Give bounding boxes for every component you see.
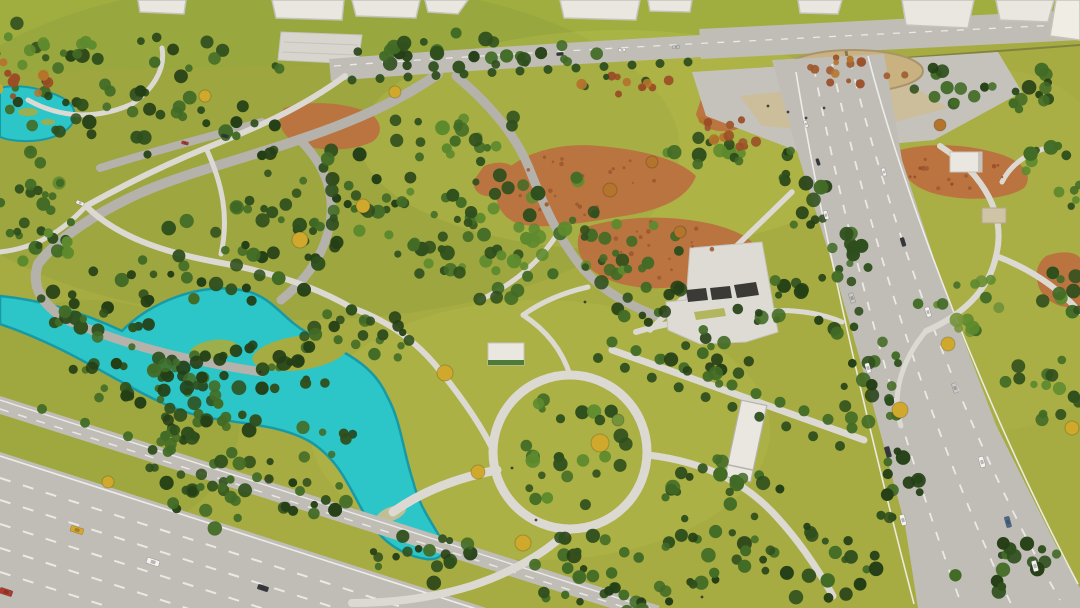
tree bbox=[167, 271, 174, 278]
tree bbox=[870, 551, 880, 561]
tree bbox=[311, 501, 318, 508]
tree bbox=[273, 350, 287, 364]
tree bbox=[260, 205, 268, 213]
tree bbox=[138, 255, 147, 264]
tree bbox=[92, 53, 104, 65]
tree bbox=[187, 486, 197, 496]
tree bbox=[420, 38, 428, 46]
tree bbox=[639, 235, 643, 239]
tree bbox=[294, 356, 304, 366]
tree bbox=[520, 262, 528, 270]
tree bbox=[554, 452, 565, 463]
row-tree bbox=[488, 68, 497, 77]
row-tree bbox=[432, 71, 441, 80]
tree bbox=[44, 228, 53, 237]
tree bbox=[213, 353, 226, 366]
tree bbox=[264, 170, 272, 178]
tree bbox=[814, 316, 823, 325]
accent-tree bbox=[646, 156, 658, 168]
tree bbox=[500, 49, 513, 62]
tree bbox=[430, 46, 444, 60]
tree bbox=[717, 336, 730, 349]
tree bbox=[164, 403, 175, 414]
tree bbox=[733, 304, 744, 315]
tree bbox=[92, 331, 104, 343]
tree bbox=[928, 63, 939, 74]
tree bbox=[822, 538, 829, 545]
tree bbox=[845, 411, 858, 424]
pond-islet bbox=[18, 108, 38, 116]
tree bbox=[76, 99, 88, 111]
tree bbox=[13, 228, 21, 236]
tree bbox=[697, 347, 709, 359]
tree bbox=[988, 82, 997, 91]
tree bbox=[839, 587, 852, 600]
tree bbox=[560, 157, 564, 161]
tree bbox=[407, 239, 419, 251]
tree bbox=[916, 488, 924, 496]
tree bbox=[884, 512, 895, 523]
tree bbox=[245, 196, 255, 206]
tree bbox=[729, 529, 736, 536]
tree bbox=[137, 130, 152, 145]
tree bbox=[527, 168, 531, 172]
tree bbox=[664, 352, 678, 366]
row-tree bbox=[808, 431, 818, 441]
tree bbox=[811, 215, 820, 224]
tree bbox=[964, 174, 968, 178]
tree bbox=[274, 64, 284, 74]
tree bbox=[428, 61, 439, 72]
tree bbox=[255, 382, 268, 395]
tree bbox=[970, 279, 980, 289]
tree bbox=[623, 166, 626, 169]
tree bbox=[143, 150, 151, 158]
row-tree bbox=[775, 397, 786, 408]
tree bbox=[726, 488, 734, 496]
tree bbox=[639, 312, 647, 320]
tree bbox=[414, 268, 424, 278]
tree bbox=[183, 91, 197, 105]
tree bbox=[595, 415, 606, 426]
tree bbox=[185, 64, 193, 72]
tree bbox=[210, 389, 222, 401]
tree bbox=[415, 152, 424, 161]
tree bbox=[477, 228, 491, 242]
row-tree bbox=[252, 472, 262, 482]
tree bbox=[297, 283, 311, 297]
tree bbox=[639, 84, 646, 91]
tree bbox=[715, 380, 723, 388]
tree bbox=[668, 258, 671, 261]
accent-tree bbox=[674, 226, 686, 238]
tree bbox=[726, 121, 734, 129]
tree bbox=[594, 275, 608, 289]
tree bbox=[559, 162, 564, 167]
tree bbox=[1054, 187, 1065, 198]
tree bbox=[884, 394, 894, 404]
tree bbox=[709, 366, 723, 380]
tree bbox=[10, 17, 23, 30]
tree bbox=[42, 191, 49, 198]
accent-tree bbox=[603, 183, 617, 197]
tree bbox=[740, 545, 751, 556]
tree bbox=[209, 277, 223, 291]
tree bbox=[786, 147, 795, 156]
tree bbox=[1007, 549, 1022, 564]
tree bbox=[35, 157, 47, 169]
accent-tree bbox=[102, 476, 114, 488]
tree bbox=[243, 205, 252, 214]
tree bbox=[1039, 82, 1051, 94]
tree bbox=[5, 105, 15, 115]
pedestrian bbox=[701, 596, 704, 599]
tree bbox=[27, 147, 34, 154]
tree bbox=[444, 557, 456, 569]
tree bbox=[150, 271, 158, 279]
tree bbox=[507, 254, 521, 268]
tree bbox=[256, 362, 270, 376]
tree bbox=[99, 309, 108, 318]
tree bbox=[46, 285, 60, 299]
tree bbox=[238, 411, 247, 420]
tree bbox=[472, 178, 479, 185]
tree bbox=[438, 121, 448, 131]
tree bbox=[278, 216, 285, 223]
tree bbox=[665, 480, 680, 495]
tree bbox=[39, 40, 50, 51]
car bbox=[672, 45, 679, 49]
tree bbox=[177, 470, 186, 479]
tree bbox=[552, 161, 555, 164]
tree bbox=[789, 590, 803, 604]
building bbox=[902, 0, 974, 28]
tree bbox=[633, 552, 644, 563]
tree bbox=[1039, 410, 1048, 419]
tree bbox=[826, 79, 834, 87]
tree bbox=[884, 458, 893, 467]
tree bbox=[545, 202, 549, 206]
tree bbox=[59, 305, 72, 318]
tree bbox=[185, 431, 199, 445]
tree bbox=[598, 232, 611, 245]
tree bbox=[70, 113, 81, 124]
row-tree bbox=[727, 380, 738, 391]
tree bbox=[160, 476, 174, 490]
tree bbox=[270, 384, 280, 394]
tree bbox=[174, 408, 188, 422]
tree bbox=[330, 214, 338, 222]
accent-tree bbox=[471, 465, 485, 479]
tree bbox=[538, 587, 550, 599]
tree bbox=[986, 275, 996, 285]
tree bbox=[440, 246, 455, 261]
tree bbox=[315, 222, 325, 232]
tree bbox=[692, 159, 703, 170]
tree bbox=[641, 282, 652, 293]
tree bbox=[538, 472, 546, 480]
tree bbox=[68, 290, 77, 299]
tree bbox=[1044, 140, 1059, 155]
tree bbox=[881, 488, 894, 501]
row-tree bbox=[631, 345, 642, 356]
tree bbox=[751, 535, 759, 543]
tree bbox=[529, 493, 541, 505]
tree bbox=[647, 244, 650, 247]
tree bbox=[51, 126, 60, 135]
tree bbox=[759, 556, 767, 564]
accent-tree bbox=[356, 199, 370, 213]
tree bbox=[581, 233, 589, 241]
tree bbox=[34, 89, 42, 97]
tree bbox=[465, 206, 477, 218]
car-cabin bbox=[559, 53, 562, 55]
tree bbox=[222, 422, 231, 431]
tree bbox=[402, 61, 411, 70]
tree bbox=[214, 455, 228, 469]
tree bbox=[414, 118, 422, 126]
tree bbox=[344, 200, 352, 208]
tree bbox=[839, 400, 851, 412]
tree bbox=[468, 51, 479, 62]
tree bbox=[664, 76, 674, 86]
tree bbox=[511, 284, 525, 298]
tree bbox=[623, 78, 631, 86]
tree bbox=[446, 189, 459, 202]
tree bbox=[713, 144, 727, 158]
pavilion-shade-face bbox=[978, 152, 982, 172]
tree bbox=[738, 116, 745, 123]
tree bbox=[1015, 105, 1023, 113]
tree bbox=[233, 457, 247, 471]
tree bbox=[796, 206, 809, 219]
accent-tree bbox=[199, 90, 211, 102]
row-tree bbox=[656, 59, 665, 68]
tree bbox=[980, 292, 992, 304]
tree bbox=[173, 100, 186, 113]
tree bbox=[76, 38, 87, 49]
tree bbox=[152, 33, 162, 43]
tree bbox=[4, 32, 13, 41]
tree bbox=[319, 429, 326, 436]
tree bbox=[592, 469, 600, 477]
tree bbox=[954, 82, 967, 95]
tree bbox=[151, 464, 159, 472]
tree bbox=[379, 51, 389, 61]
tree bbox=[384, 230, 393, 239]
tree bbox=[127, 106, 138, 117]
tree bbox=[72, 49, 82, 59]
tree bbox=[230, 259, 243, 272]
pedestrian bbox=[511, 467, 514, 470]
tree bbox=[226, 447, 237, 458]
tree bbox=[554, 195, 557, 198]
tree bbox=[392, 320, 404, 332]
tree bbox=[404, 335, 415, 346]
tree bbox=[128, 343, 135, 350]
park-aerial-render bbox=[0, 0, 1080, 608]
tree bbox=[491, 60, 500, 69]
tree bbox=[580, 499, 591, 510]
tree bbox=[101, 384, 109, 392]
tree bbox=[35, 242, 42, 249]
tree bbox=[623, 293, 633, 303]
pedestrian bbox=[259, 371, 262, 374]
tree bbox=[202, 119, 210, 127]
tree bbox=[911, 473, 926, 488]
tree bbox=[397, 342, 404, 349]
tree bbox=[167, 44, 179, 56]
tree bbox=[299, 451, 310, 462]
tree bbox=[311, 256, 325, 270]
tree bbox=[496, 250, 506, 260]
tree bbox=[770, 275, 781, 286]
tree bbox=[1000, 376, 1012, 388]
tree bbox=[300, 378, 311, 389]
tree bbox=[603, 74, 609, 80]
tree bbox=[303, 341, 315, 353]
tree bbox=[799, 176, 814, 191]
tree bbox=[230, 116, 242, 128]
park-render-canvas bbox=[0, 0, 1080, 608]
tree bbox=[6, 229, 15, 238]
tree bbox=[299, 331, 309, 341]
tree bbox=[221, 246, 230, 255]
tree bbox=[992, 164, 997, 169]
tree bbox=[854, 307, 863, 316]
tree bbox=[19, 218, 30, 229]
row-tree bbox=[123, 431, 133, 441]
tree bbox=[674, 246, 684, 256]
tree bbox=[217, 483, 226, 492]
tree bbox=[250, 119, 258, 127]
tree bbox=[522, 271, 533, 282]
tree bbox=[156, 110, 166, 120]
row-tree bbox=[628, 61, 637, 70]
tree bbox=[60, 49, 67, 56]
tree bbox=[452, 61, 465, 74]
tree bbox=[242, 284, 251, 293]
tree bbox=[766, 545, 776, 555]
tree bbox=[288, 506, 298, 516]
accent-tree bbox=[892, 402, 908, 418]
tree bbox=[1038, 545, 1046, 553]
tree bbox=[1041, 380, 1051, 390]
tree bbox=[583, 214, 586, 217]
tree bbox=[370, 548, 377, 555]
accent-tree bbox=[612, 414, 624, 426]
tree bbox=[865, 388, 879, 402]
tree bbox=[571, 172, 583, 184]
tree bbox=[519, 194, 522, 197]
tree bbox=[463, 231, 474, 242]
tree bbox=[980, 83, 989, 92]
tree bbox=[850, 323, 859, 332]
tree bbox=[296, 421, 309, 434]
tree bbox=[582, 263, 589, 270]
tree bbox=[795, 283, 809, 297]
tree bbox=[67, 218, 75, 226]
tree bbox=[463, 548, 471, 556]
tree bbox=[713, 467, 728, 482]
tree bbox=[1053, 382, 1066, 395]
tree bbox=[493, 168, 507, 182]
pedestrian bbox=[535, 519, 538, 522]
tree bbox=[608, 170, 612, 174]
tree bbox=[996, 563, 1010, 577]
pavilion bbox=[982, 208, 1006, 223]
tree bbox=[220, 412, 231, 423]
tree bbox=[207, 481, 218, 492]
tree bbox=[624, 265, 632, 273]
tree bbox=[611, 219, 622, 230]
tree bbox=[924, 158, 927, 161]
tree bbox=[536, 248, 549, 261]
tree bbox=[390, 134, 403, 147]
tree bbox=[862, 415, 876, 429]
tree bbox=[1012, 88, 1020, 96]
tree bbox=[506, 120, 518, 132]
shelter-roof bbox=[686, 288, 708, 302]
tree bbox=[993, 302, 1004, 313]
tree bbox=[901, 71, 908, 78]
tree bbox=[267, 458, 274, 465]
tree bbox=[201, 36, 214, 49]
tree bbox=[1046, 369, 1059, 382]
tree bbox=[8, 76, 19, 87]
tree bbox=[329, 321, 340, 332]
tree bbox=[701, 548, 716, 563]
tree bbox=[733, 367, 744, 378]
tree bbox=[657, 276, 661, 280]
tree bbox=[188, 293, 199, 304]
pavilion bbox=[950, 152, 982, 172]
row-tree bbox=[823, 414, 834, 425]
tree bbox=[24, 44, 36, 56]
tree bbox=[328, 451, 335, 458]
tree bbox=[929, 91, 941, 103]
tree bbox=[857, 57, 867, 67]
tree bbox=[1072, 196, 1080, 204]
tree bbox=[149, 57, 160, 68]
tree bbox=[941, 81, 954, 94]
tree bbox=[488, 203, 500, 215]
tree bbox=[683, 366, 693, 376]
tree bbox=[561, 471, 573, 483]
tree bbox=[346, 304, 357, 315]
tree bbox=[667, 145, 681, 159]
tree bbox=[246, 248, 260, 262]
tree bbox=[936, 186, 940, 190]
tree bbox=[62, 99, 69, 106]
tree bbox=[918, 166, 922, 170]
tree bbox=[394, 353, 402, 361]
tree bbox=[62, 236, 73, 247]
tree bbox=[616, 254, 629, 267]
tree bbox=[704, 118, 713, 127]
tree bbox=[543, 156, 546, 159]
tree bbox=[423, 544, 436, 557]
tree bbox=[1011, 359, 1025, 373]
tree bbox=[876, 511, 885, 520]
tree bbox=[529, 559, 541, 571]
tree bbox=[560, 55, 568, 63]
tree bbox=[542, 492, 554, 504]
tree bbox=[320, 378, 330, 388]
tree bbox=[660, 585, 672, 597]
tree bbox=[531, 186, 546, 201]
tree bbox=[562, 562, 574, 574]
